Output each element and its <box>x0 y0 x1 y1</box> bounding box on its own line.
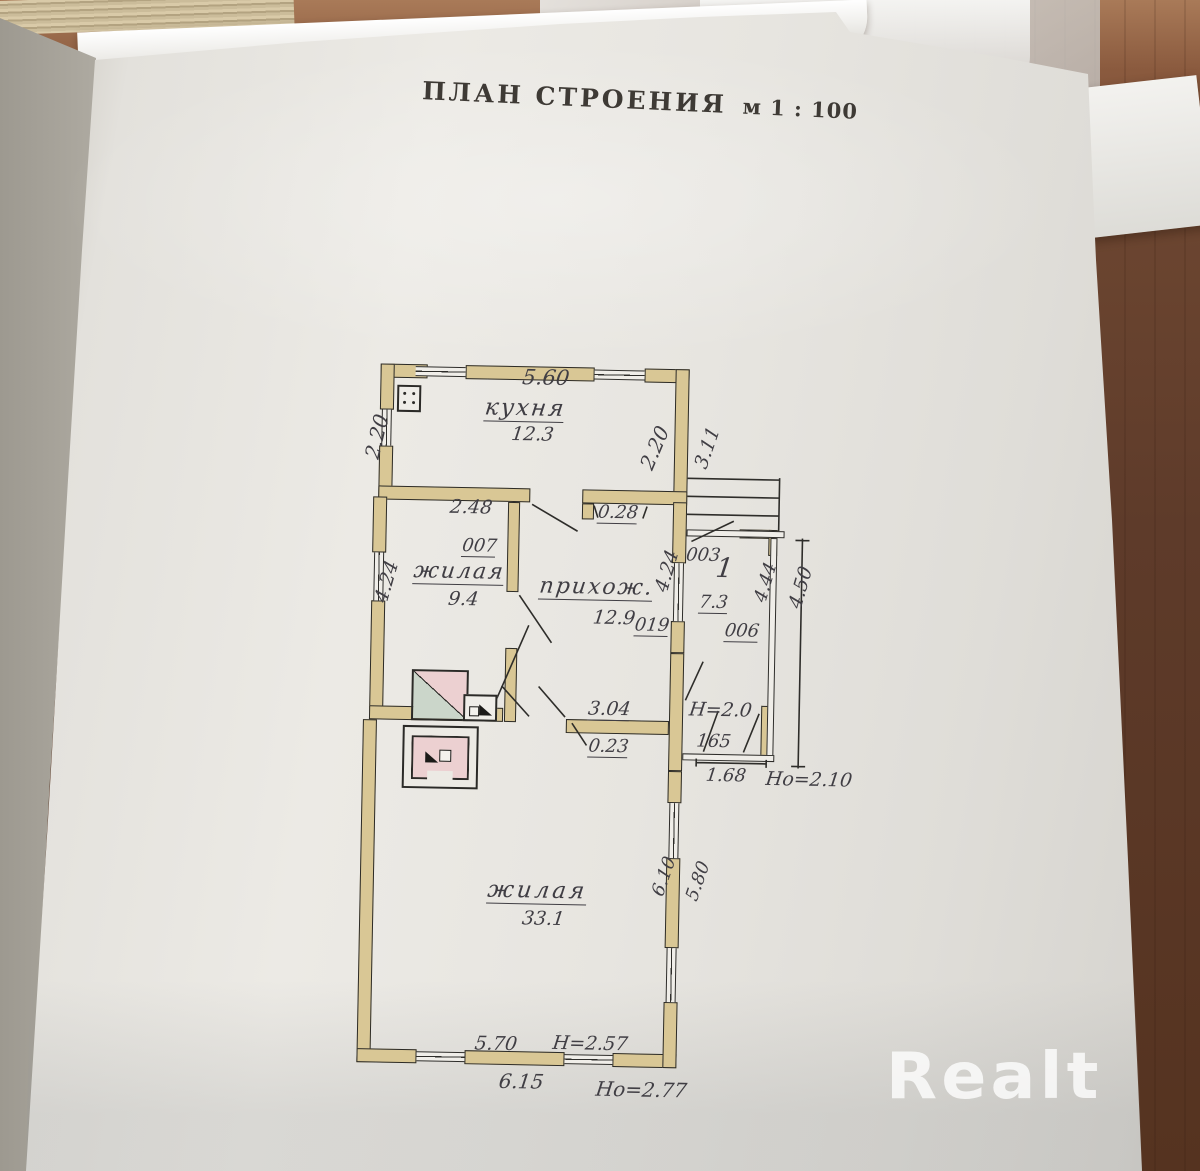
door-swing-003 <box>691 520 733 542</box>
porch-steps <box>687 476 780 531</box>
firebox-triangle <box>479 704 492 715</box>
room-kitchen-area: 12.3 <box>510 423 555 446</box>
dim-large-ho: Но=2.77 <box>594 1077 688 1103</box>
dim-small-top: 2.48 <box>449 496 494 519</box>
room-large-area: 33.1 <box>521 907 566 930</box>
room-small-name: жилая <box>412 558 506 586</box>
dim-kitchen-top: 5.60 <box>521 365 571 390</box>
dim-pier-007: 007 <box>461 535 498 558</box>
dim-door-028: 0.28 <box>597 502 640 525</box>
plan-linework <box>344 352 833 1096</box>
dim-veranda-165: 165 <box>695 731 732 753</box>
dim-opening-304: 3.04 <box>587 698 632 722</box>
door-swing-hall <box>501 686 566 717</box>
room-veranda-area: 7.3 <box>698 592 729 615</box>
room-kitchen-name: кухня <box>483 394 567 422</box>
stove-diagonal-icon <box>411 669 469 721</box>
stove-firebox-icon <box>463 694 498 722</box>
dim-veranda-168: 1.68 <box>705 765 748 787</box>
dim-veranda-ho: Но=2.10 <box>765 768 854 792</box>
door-swing-019 <box>685 661 703 700</box>
realt-watermark: Realt <box>886 1040 1103 1114</box>
door-swing-kitchen <box>532 504 578 531</box>
title-scale: м 1 : 100 <box>742 94 858 124</box>
leader-023 <box>571 723 586 745</box>
dim-large-bottom-in: 5.70 <box>473 1032 518 1055</box>
room-hall-name: прихож. <box>538 574 655 602</box>
dim-large-bottom-out: 6.15 <box>498 1069 546 1094</box>
dim-pier-006: 006 <box>723 620 760 643</box>
furnace-square <box>439 750 451 762</box>
gas-stove-icon <box>397 385 422 412</box>
furnace-triangle <box>425 751 438 762</box>
firebox-square <box>469 706 479 716</box>
dim-veranda-h: Н=2.0 <box>688 698 753 721</box>
room-small-area: 9.4 <box>447 588 480 611</box>
floor-plan: 5.60 кухня 12.3 2.20 2.20 3.11 2.48 007 … <box>344 352 833 1096</box>
room-large-name: жилая <box>486 877 589 906</box>
dim-pier-023: 0.23 <box>587 736 630 759</box>
room-hall-area: 12.9 <box>592 607 637 630</box>
dim-large-h: Н=2.57 <box>551 1032 629 1055</box>
dim-door-019: 019 <box>633 614 670 637</box>
diagonal-partition <box>493 625 529 708</box>
